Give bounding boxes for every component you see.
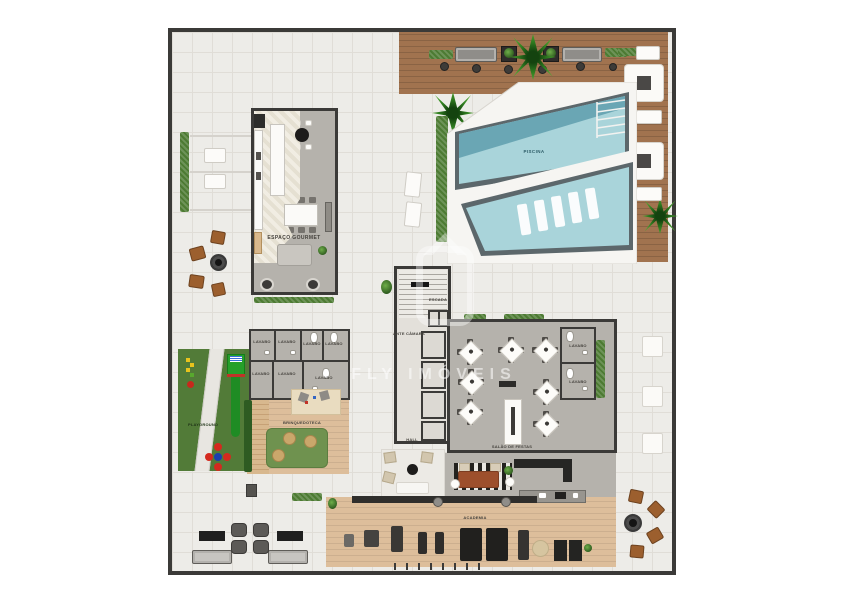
gym-rack — [460, 528, 482, 561]
chair — [305, 120, 312, 126]
chair — [309, 197, 316, 203]
hedge-planter — [292, 493, 322, 501]
locker — [554, 540, 567, 561]
gym-bench — [344, 534, 354, 547]
sideboard — [499, 381, 516, 387]
toilet — [566, 331, 574, 342]
room-label-salao: SALÃO DE FESTAS — [492, 445, 532, 449]
pouf — [304, 435, 317, 448]
gym-machine — [418, 532, 427, 554]
service-room — [421, 421, 446, 441]
round-pot — [609, 63, 617, 71]
elevator-divider — [438, 310, 440, 327]
locker — [569, 540, 582, 561]
table-runner — [511, 407, 515, 435]
sofa — [277, 244, 312, 266]
party-table — [534, 380, 558, 404]
wood-seat — [646, 500, 665, 519]
wood-seat — [646, 526, 665, 544]
deck-bench — [562, 47, 602, 62]
wood-seat — [629, 544, 644, 558]
hedge-planter — [254, 297, 334, 303]
round-table — [295, 128, 309, 142]
garden-bench — [268, 550, 308, 564]
carousel-seat — [214, 443, 222, 451]
dining-table — [284, 204, 318, 226]
room-label-piscina: PISCINA — [523, 150, 544, 155]
room-label-playground: PLAYGROUND — [188, 423, 218, 427]
party-table — [499, 338, 523, 362]
daybed-cushion — [637, 154, 651, 168]
appliance — [256, 172, 261, 180]
paving-line — [190, 209, 252, 211]
play-slide — [231, 377, 240, 437]
elevator-shaft — [421, 361, 446, 389]
partition — [322, 329, 324, 362]
floor-plan: PISCINA ESPAÇO GOURMET ESCADA ANTE CÂMAR… — [168, 28, 676, 575]
room-label-academia: ACADEMIA — [463, 516, 486, 520]
coffee-table — [407, 464, 418, 475]
party-table — [533, 338, 557, 362]
partition — [560, 362, 596, 364]
partition — [274, 329, 276, 362]
wood-seat — [211, 282, 226, 297]
floor-plan-page: PISCINA ESPAÇO GOURMET ESCADA ANTE CÂMAR… — [0, 0, 848, 600]
kitchen-counter — [254, 130, 263, 230]
ottoman — [231, 540, 247, 554]
cooktop — [555, 492, 566, 499]
outdoor-table — [642, 433, 663, 454]
room-label-espaco-gourmet: ESPAÇO GOURMET — [267, 236, 320, 242]
partition — [272, 362, 274, 400]
round-pot — [440, 62, 449, 71]
sink — [538, 492, 547, 499]
wall-stub — [246, 484, 257, 497]
plant — [504, 48, 514, 58]
toy — [305, 401, 308, 404]
round-pot — [472, 64, 481, 73]
plant — [381, 280, 392, 294]
wood-seat — [628, 489, 644, 505]
party-table — [459, 370, 483, 394]
chaise-lounge — [204, 174, 226, 189]
party-table — [458, 340, 482, 364]
cabinet — [254, 232, 262, 254]
wood-seat — [189, 245, 207, 261]
hedge-planter — [596, 340, 605, 398]
sink — [264, 350, 270, 355]
paving-line — [190, 171, 252, 173]
plant — [318, 246, 327, 255]
room-label-lavabo: LAVABO — [315, 376, 333, 380]
room-label-escada: ESCADA — [429, 298, 447, 302]
sink — [290, 350, 296, 355]
ottoman — [231, 523, 247, 537]
gym-machine — [518, 530, 529, 560]
gym-machine — [391, 526, 403, 552]
poolside-lounger — [404, 171, 423, 198]
pouf — [283, 432, 296, 445]
toy — [313, 396, 316, 399]
daybed-cushion — [637, 76, 651, 90]
armchair — [383, 451, 396, 464]
column — [433, 497, 443, 507]
plant — [328, 498, 337, 509]
deck-lounger — [636, 187, 662, 201]
play-rug — [291, 389, 341, 415]
ottoman — [253, 540, 269, 554]
sofa-leather — [458, 471, 499, 488]
hedge-strip — [244, 400, 252, 472]
room-label-lavabo: LAVABO — [303, 342, 321, 346]
paving-line — [190, 135, 252, 137]
room-label-lavabo: LAVABO — [253, 340, 271, 344]
play-rug-green — [266, 428, 328, 468]
room-label-lavabo: LAVABO — [278, 340, 296, 344]
gym-machine — [435, 532, 444, 554]
fire-pit — [210, 254, 227, 271]
floor-mat — [199, 531, 225, 541]
appliance — [256, 152, 261, 160]
toy-blocks — [186, 358, 190, 362]
stair-rail — [411, 282, 429, 287]
plant — [584, 544, 592, 552]
palm-tree — [642, 198, 678, 234]
fire-pit — [624, 514, 642, 532]
kitchen-island — [270, 124, 285, 196]
deck-lounger — [636, 46, 660, 60]
elevator-shaft — [421, 391, 446, 419]
toilet — [566, 368, 574, 379]
gym-machine — [364, 530, 379, 547]
chair — [298, 227, 305, 233]
side-table — [450, 479, 460, 489]
room-label-brinquedoteca: BRINQUEDOTECA — [283, 421, 321, 425]
door-hatch-marks — [394, 563, 486, 570]
deck-bench — [455, 47, 497, 62]
side-table — [505, 477, 515, 487]
play-tower-base — [227, 374, 245, 377]
armchair — [420, 451, 433, 464]
room-label-lavabo: LAVABO — [569, 344, 587, 348]
floor-mat — [277, 531, 303, 541]
party-table — [534, 412, 558, 436]
garden-bench — [192, 550, 232, 564]
carousel-center — [214, 453, 222, 461]
pool — [447, 82, 637, 264]
appliance — [572, 492, 579, 499]
partition — [300, 329, 302, 362]
round-chair — [260, 278, 274, 291]
carousel-seat — [205, 453, 213, 461]
wood-seat — [188, 274, 205, 289]
chair — [309, 227, 316, 233]
party-table — [458, 400, 482, 424]
palm-tree — [510, 34, 556, 80]
deck-lounger — [636, 110, 662, 124]
hedge-planter — [180, 132, 189, 212]
bar-counter — [563, 466, 572, 482]
room-label-lavabo: LAVABO — [252, 372, 270, 376]
round-pot — [504, 65, 513, 74]
room-label-lavabo: LAVABO — [569, 380, 587, 384]
toy-ball — [187, 381, 194, 388]
sofa — [396, 482, 429, 494]
outdoor-table — [642, 336, 663, 357]
carousel-seat — [223, 453, 231, 461]
hedge-planter — [429, 50, 453, 59]
chair — [305, 144, 312, 150]
carousel-seat — [214, 463, 222, 471]
partition — [249, 360, 350, 362]
sink — [582, 350, 588, 355]
round-chair — [306, 278, 320, 291]
round-pot — [576, 62, 585, 71]
room-label-ante-camara: ANTE CÂMARA — [393, 332, 425, 336]
room-label-lavabo: LAVABO — [325, 342, 343, 346]
gym-rack — [486, 528, 508, 561]
pouf — [272, 449, 285, 462]
play-tower-bench — [230, 356, 242, 362]
gym-rug — [532, 540, 549, 557]
plant — [504, 466, 513, 475]
tv-console — [325, 202, 332, 232]
column — [501, 497, 511, 507]
room-label-hall: HALL — [406, 438, 417, 442]
ottoman — [253, 523, 269, 537]
outdoor-table — [642, 386, 663, 407]
sink — [582, 386, 588, 391]
room-label-lavabo: LAVABO — [278, 372, 296, 376]
fridge — [254, 114, 265, 128]
chaise-lounge — [204, 148, 226, 163]
wood-seat — [210, 230, 226, 245]
carousel — [205, 443, 231, 471]
poolside-lounger — [404, 201, 423, 228]
